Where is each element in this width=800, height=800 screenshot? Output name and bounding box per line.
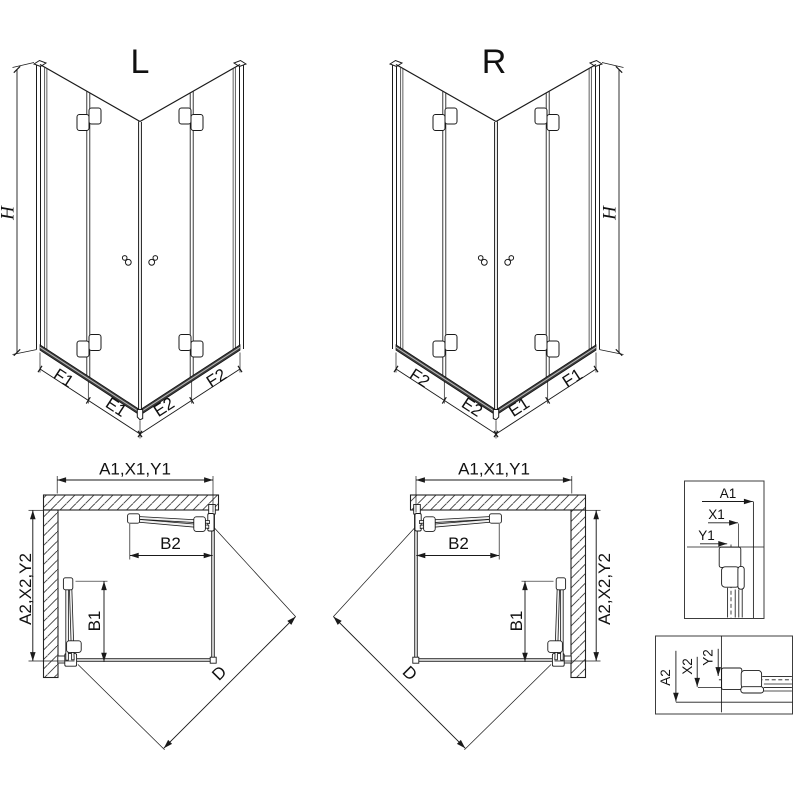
width-dim-label-right-plan: A1,X1,Y1	[458, 459, 530, 478]
top-door-dim-label-left-plan: B2	[160, 534, 181, 553]
dim-label-e2-right: E2	[458, 394, 486, 421]
width-dim-label-left-plan: A1,X1,Y1	[99, 459, 171, 478]
profile-detail-bottom: A2 X2 Y2	[656, 636, 793, 714]
height-dim-label-right: H	[599, 205, 620, 221]
side-door-dim-label-left-plan: B1	[85, 611, 104, 632]
detail-dim-label-y1: Y1	[698, 528, 715, 543]
diagonal-dim-label-left-plan: D	[208, 662, 230, 684]
wall-top-right-plan	[411, 495, 586, 510]
dim-label-e2-left: E2	[150, 394, 178, 421]
profile-detail-top: A1 X1 Y1	[685, 481, 765, 619]
side-door-dim-label-right-plan: B1	[507, 611, 526, 632]
detail-dim-label-x2: X2	[680, 658, 695, 675]
wall-top-left-plan	[44, 495, 219, 510]
iso-right-label: R	[482, 43, 507, 81]
profile-detail-top-drawing	[687, 502, 764, 619]
iso-view-left: L H F1 E1 E2 F2	[0, 43, 246, 439]
top-door-dim-label-right-plan: B2	[448, 534, 469, 553]
iso-view-right: R H F2 E2 E1 F1	[390, 43, 624, 439]
detail-dim-label-x1: X1	[708, 507, 725, 522]
plan-right-doors-and-dims	[333, 476, 600, 750]
height-dim-label-left: H	[0, 205, 18, 221]
depth-dim-label-right-plan: A2,X2,Y2	[595, 553, 614, 625]
dim-label-e1-right: E1	[505, 394, 533, 421]
wall-side-left-plan	[44, 510, 59, 678]
detail-dim-label-a1: A1	[720, 486, 737, 501]
diagonal-dim-label-right-plan: D	[399, 662, 421, 684]
plan-view-right: A1,X1,Y1 A2,X2,Y2 B2 B1 D	[333, 459, 614, 749]
detail-dim-label-y2: Y2	[701, 649, 716, 666]
dim-label-e1-left: E1	[102, 394, 130, 421]
iso-left-label: L	[131, 43, 150, 81]
detail-dim-label-a2: A2	[658, 669, 673, 686]
shower-enclosure-technical-drawing: L H F1 E1 E2 F2 R H F2 E2 E1 F1 A1,X1,Y1…	[0, 0, 800, 800]
technical-drawing-page: L H F1 E1 E2 F2 R H F2 E2 E1 F1 A1,X1,Y1…	[0, 0, 800, 800]
wall-side-right-plan	[571, 510, 586, 678]
depth-dim-label-left-plan: A2,X2,Y2	[16, 553, 35, 625]
plan-view-left: A1,X1,Y1 A2,X2,Y2 B2 B1 D	[16, 459, 296, 749]
plan-left-doors-and-dims	[29, 476, 296, 750]
